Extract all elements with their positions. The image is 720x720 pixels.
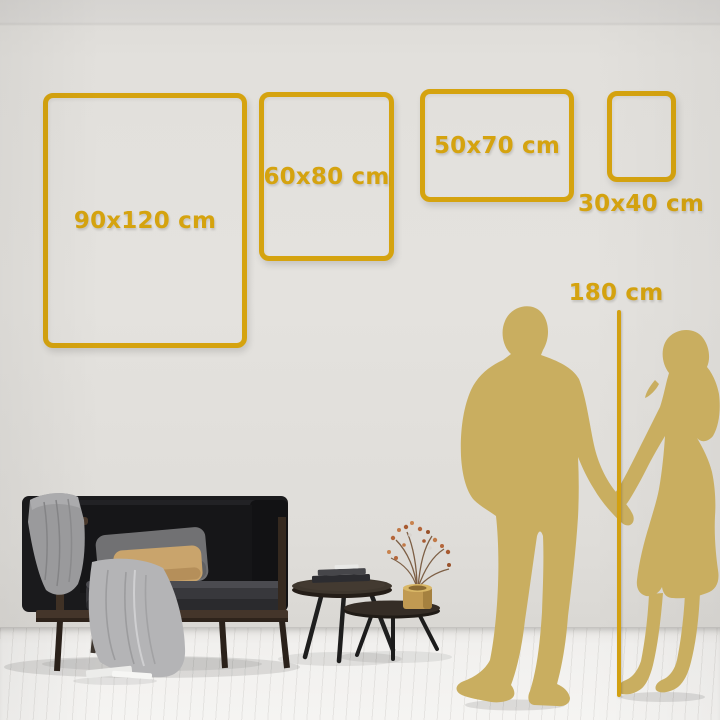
vase: [387, 521, 451, 609]
frame-60x80-label: 60x80 cm: [263, 164, 389, 190]
seat-cushion: [86, 581, 286, 611]
height-reference-label: 180 cm: [555, 280, 677, 306]
throw-blanket-arm: [28, 493, 85, 595]
frame-90x120-label: 90x120 cm: [74, 208, 216, 234]
frame-90x120: 90x120 cm: [43, 93, 247, 348]
blossoms: [387, 521, 451, 567]
frame-50x70: 50x70 cm: [420, 89, 574, 202]
hair-strand-right: [706, 385, 719, 402]
size-guide-image: 90x120 cm 60x80 cm 50x70 cm 30x40 cm 180…: [0, 0, 720, 720]
gray-pillow: [95, 526, 209, 589]
frame-30x40-label: 30x40 cm: [575, 191, 707, 217]
sofa-shell: [22, 496, 288, 612]
tan-pillow: [113, 545, 203, 587]
plant-branches: [387, 521, 451, 588]
frame-60x80: 60x80 cm: [259, 92, 394, 261]
frame-30x40: [607, 91, 676, 182]
table-books: [312, 564, 371, 583]
hair-strand-left: [645, 380, 659, 398]
frame-50x70-label: 50x70 cm: [434, 133, 560, 159]
wood-floor: [0, 627, 720, 720]
height-reference-line: [617, 310, 621, 697]
